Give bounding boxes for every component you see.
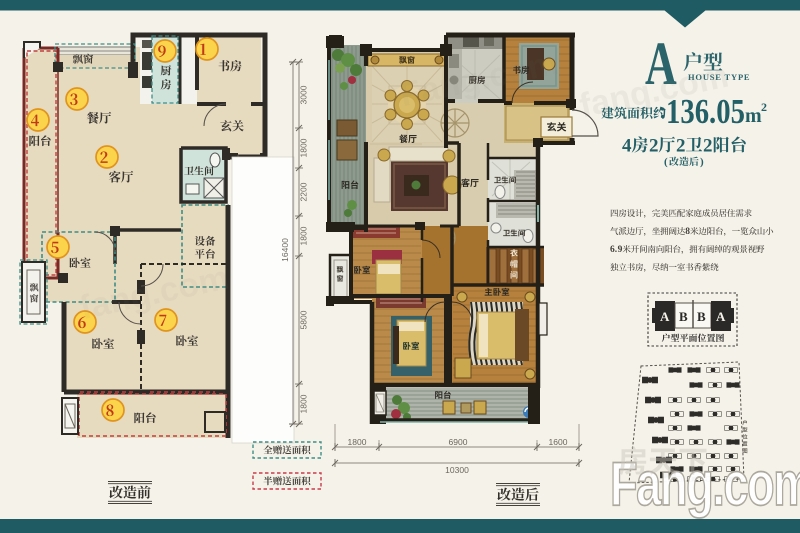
svg-text:1600: 1600: [549, 437, 568, 447]
svg-text:Fang.com: Fang.com: [610, 449, 800, 519]
svg-text:1800: 1800: [299, 138, 309, 157]
svg-text:A: A: [660, 309, 670, 324]
svg-text:A: A: [716, 309, 726, 324]
svg-text:B: B: [697, 309, 706, 324]
svg-text:(: (: [664, 156, 668, 168]
svg-text:16400: 16400: [280, 238, 290, 262]
svg-text:): ): [700, 156, 704, 168]
svg-text:2200: 2200: [299, 182, 309, 201]
svg-text:B: B: [679, 309, 688, 324]
svg-text:6900: 6900: [449, 437, 468, 447]
svg-text:2: 2: [649, 136, 659, 157]
svg-text:2: 2: [761, 100, 767, 114]
svg-text:10300: 10300: [445, 465, 469, 475]
svg-text:1800: 1800: [299, 394, 309, 413]
svg-text:3000: 3000: [299, 85, 309, 104]
svg-text:1800: 1800: [348, 437, 367, 447]
svg-text:2: 2: [703, 136, 713, 157]
svg-text:m: m: [745, 105, 762, 127]
svg-text:4: 4: [622, 136, 632, 157]
svg-text:1800: 1800: [299, 226, 309, 245]
svg-text:8: 8: [685, 227, 690, 237]
svg-text:2: 2: [676, 136, 686, 157]
svg-text:5800: 5800: [299, 310, 309, 329]
svg-text:9: 9: [618, 245, 623, 255]
